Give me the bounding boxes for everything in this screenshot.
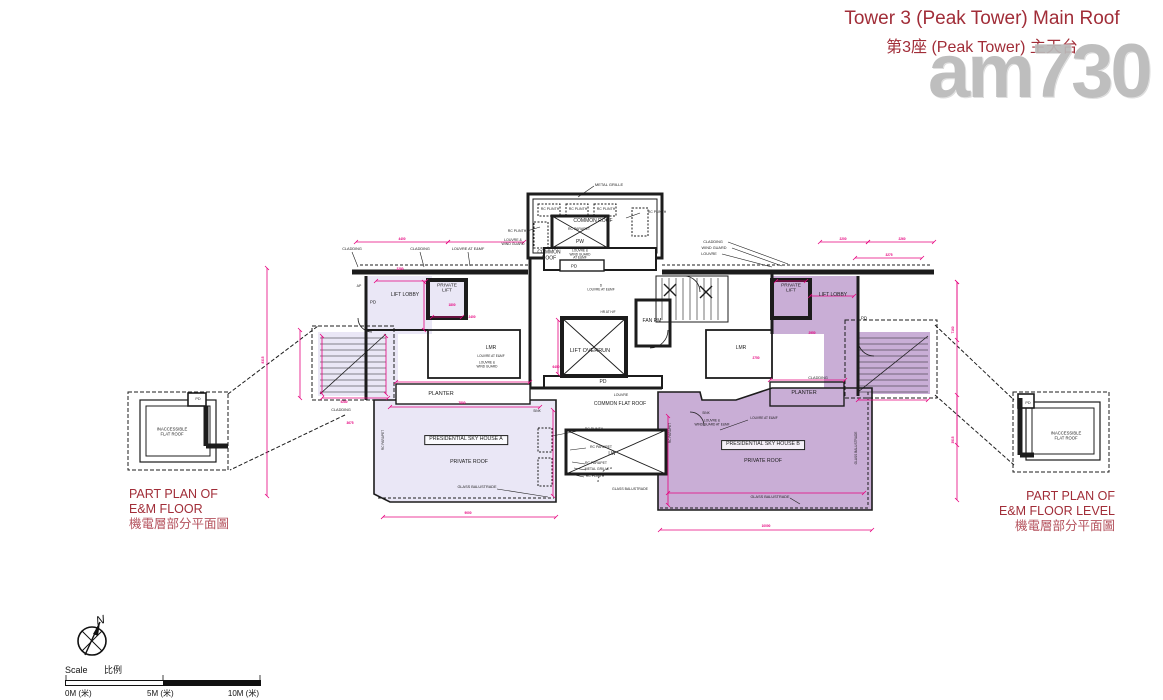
plan-label: RC PLINTH [648, 211, 666, 215]
plan-label: RC PLINTH [508, 230, 526, 234]
am730-watermark: am730 [928, 28, 1150, 115]
plan-label: RC PARAPET [585, 462, 607, 466]
part-plan-right-line1: PART PLAN OF [997, 489, 1115, 504]
plan-label: INACCESSIBLE FLAT ROOF [157, 427, 188, 436]
scale-bar-graphic [65, 680, 261, 686]
dimension-label: 2750 [752, 357, 759, 361]
part-plan-right-title: PART PLAN OF E&M FLOOR LEVEL 機電層部分平面圖 [997, 489, 1115, 533]
part-plan-right-chinese: 機電層部分平面圖 [997, 519, 1115, 534]
scale-bar-second-half [163, 681, 260, 685]
plan-label: RC PARAPET [382, 430, 386, 450]
plan-label: GLASS BALUSTRADE [855, 432, 859, 465]
dimension-label: 7160 [952, 326, 956, 333]
plan-label: RC PLINTH [541, 208, 559, 212]
plan-label: LOUVRE [701, 252, 717, 256]
dimension-label: 3675 [346, 422, 353, 426]
scale-bar-first-half [66, 681, 163, 685]
plan-label: PD [571, 263, 577, 268]
plan-label: LOUVRE AT E&MF [750, 417, 777, 421]
plan-label: PRIVATE LIFT [437, 284, 457, 295]
plan-label: RC PLINTH [585, 428, 603, 432]
plan-label: COMMON FLAT ROOF [594, 402, 646, 408]
plan-label: PD [1025, 401, 1030, 405]
plan-label: RC PARAPET [590, 446, 612, 450]
dimension-label: 1800 [448, 304, 455, 308]
plan-label: PW [576, 240, 584, 246]
plan-label: WIND GUARD [702, 246, 727, 250]
plan-label: RC PLINTH [586, 475, 604, 479]
plan-label: LW [608, 452, 615, 458]
plan-label: LIFT LOBBY [819, 293, 847, 299]
plan-label: LIFT LOBBY [391, 293, 419, 299]
plan-label: PRIVATE LIFT [781, 284, 801, 295]
plan-label: METAL GRILLE [585, 468, 610, 472]
scale-0m-label: 0M (米) [65, 688, 92, 699]
plan-label: PLANTER [428, 391, 453, 397]
part-plan-left-line2: E&M FLOOR [129, 502, 229, 517]
dimension-label: 6400 [552, 366, 559, 370]
scale-5m-label: 5M (米) [147, 688, 174, 699]
part-plan-left-title: PART PLAN OF E&M FLOOR 機電層部分平面圖 [129, 487, 229, 531]
plan-label: D LOUVRE AT E&MF [587, 284, 614, 291]
plan-label: GLASS BALUSTRADE [750, 495, 789, 499]
plan-label: LOUVRE AT E&MF [452, 247, 485, 251]
plan-label: CLADDING [331, 408, 351, 412]
scale-bar: Scale 比例 0M (米) 5M (米) 10M (米) [65, 663, 261, 700]
dimension-label: 4400 [398, 238, 405, 242]
plan-label: RC PLINTH [597, 208, 615, 212]
part-plan-right-line2: E&M FLOOR LEVEL [997, 504, 1115, 519]
dimension-label: 5280 [340, 401, 347, 405]
part-plan-left-chinese: 機電層部分平面圖 [129, 517, 229, 532]
plan-label: CLADDING [342, 247, 362, 251]
plan-label: LOUVRE & WIND GUARD AT E&MF [694, 419, 729, 426]
plan-label: COMMON ROOF [573, 219, 612, 225]
plan-label: CLADDING [410, 247, 430, 251]
dimension-label: 2950 [808, 332, 815, 336]
dimension-label: 2280 [396, 268, 403, 272]
part-plan-left-line1: PART PLAN OF [129, 487, 229, 502]
plan-label: INACCESSIBLE FLAT ROOF [1051, 431, 1082, 440]
plan-label: SINK [533, 410, 540, 414]
title-english: Tower 3 (Peak Tower) Main Roof [828, 8, 1136, 30]
plan-label: LMR [736, 346, 747, 352]
plan-label: PD [600, 380, 607, 386]
plan-label: PRESIDENTIAL SKY HOUSE B [721, 440, 805, 450]
plan-label: LMR [486, 346, 497, 352]
plan-label: PRIVATE ROOF [744, 459, 782, 465]
dimension-label: 2260 [898, 238, 905, 242]
plan-label: PRESIDENTIAL SKY HOUSE A [424, 435, 508, 445]
plan-label: CLADDING [808, 376, 828, 380]
dimension-label: 2200 [839, 238, 846, 242]
plan-label: PD [195, 397, 200, 401]
scale-caption: Scale 比例 [65, 663, 261, 676]
dimension-label: 3275 [885, 254, 892, 258]
plan-label: COMMON ROOF [537, 250, 560, 261]
plan-label: AP [357, 285, 362, 289]
scale-tick-labels: 0M (米) 5M (米) 10M (米) [65, 688, 259, 700]
plan-label: HR AT H/F [600, 311, 615, 315]
plan-label: LIFT OVERRUN [570, 348, 610, 354]
plan-label: RC PLINTH [569, 208, 587, 212]
page: Tower 3 (Peak Tower) Main Roof 第3座 (Peak… [0, 0, 1163, 700]
plan-label: CLADDING [703, 240, 723, 244]
plan-label: GLASS BALUSTRADE [457, 485, 496, 489]
plan-label: FAN RM [643, 319, 662, 325]
plan-label: SINK [702, 412, 709, 416]
dimension-label: 8315 [262, 356, 266, 363]
dimension-label: 2400 [468, 316, 475, 320]
plan-label: LOUVRE & WIND GUARD [477, 361, 498, 368]
dimension-label: 10000 [762, 525, 771, 529]
dimension-label: 3915 [952, 436, 956, 443]
scale-label-zh: 比例 [104, 665, 122, 675]
plan-label: PD [370, 299, 376, 304]
scale-label-en: Scale [65, 665, 88, 675]
plan-label: LOUVRE [614, 394, 628, 398]
plan-label: LOUVRE & WIND GUARD AT E&MF [570, 250, 591, 261]
dimension-label: 9000 [464, 512, 471, 516]
plan-label: METAL GRILLE [595, 183, 623, 187]
scale-10m-label: 10M (米) [228, 688, 259, 699]
plan-label: RC PARAPET [568, 228, 590, 232]
plan-label: RC PARAPET [669, 423, 673, 443]
plan-label: LOUVRE AT E&MF [477, 355, 504, 359]
plan-label: LOUVRE & WIND GUARD [502, 239, 525, 247]
plan-label: GLASS BALUSTRADE [612, 488, 648, 492]
dimension-label: 7800 [458, 402, 465, 406]
plan-label: PD [861, 315, 867, 320]
plan-label: PLANTER [791, 390, 816, 396]
plan-label: PRIVATE ROOF [450, 460, 488, 466]
